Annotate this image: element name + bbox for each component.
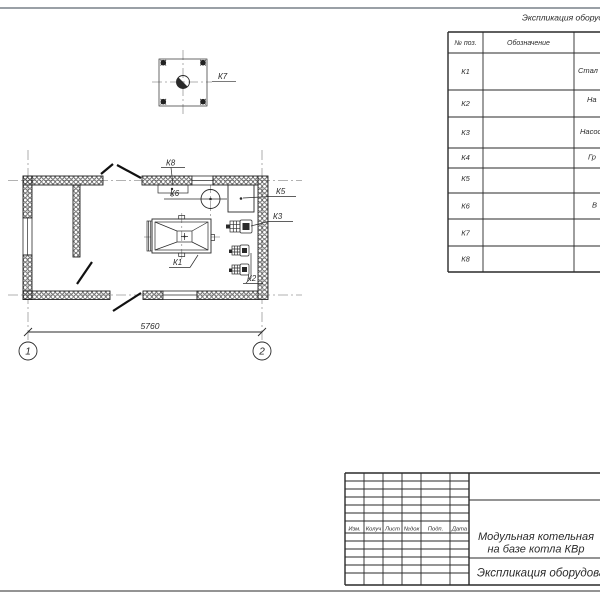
row-pos: К8	[461, 255, 470, 264]
axis-2-number: 2	[258, 347, 265, 358]
chimney-unit-k7: К7	[159, 59, 236, 106]
tb-col-ndoc: №док	[404, 527, 420, 533]
doors	[77, 164, 141, 311]
door-top-leaf-right	[117, 165, 141, 178]
row-pos: К5	[461, 174, 470, 183]
wall-top-left	[23, 176, 103, 185]
wall-top-mid	[142, 176, 192, 185]
row-name: Насос	[580, 127, 600, 136]
partition-wall	[73, 185, 80, 257]
k2-pump-2	[229, 264, 249, 275]
k3-label: К3	[273, 212, 283, 221]
k1-label: К1	[173, 258, 182, 267]
tb-col-list: Лист	[384, 527, 400, 533]
row-pos: К4	[461, 153, 470, 162]
table-row: К8	[461, 255, 470, 264]
k8-label: К8	[166, 159, 176, 168]
col-header-pos: № поз.	[454, 40, 476, 47]
title-block: Изм. Колуч Лист №док Подп. Дата Модульна…	[345, 473, 600, 585]
dimension-value: 5760	[141, 321, 160, 331]
k5-label: К5	[276, 187, 286, 196]
table-row: К7	[461, 229, 470, 238]
door-top-leaf-left	[101, 164, 113, 174]
k2-label: К2	[247, 274, 257, 283]
tb-col-kol: Колуч	[366, 527, 382, 533]
row-pos: К7	[461, 229, 470, 238]
wall-bottom-mid	[143, 291, 163, 300]
door-bottom-leaf	[113, 293, 141, 311]
dimension-5760: 5760	[24, 321, 266, 336]
walls	[23, 176, 268, 300]
k6-label: К6	[170, 189, 180, 198]
k1-front-bar	[147, 221, 152, 251]
table-row: К1 Стал	[461, 66, 598, 76]
drawing-sheet: К7 К8 К6 К5	[0, 0, 600, 600]
tb-col-data: Дата	[451, 527, 468, 533]
table-row: К2 На	[461, 95, 596, 108]
k7-chimney-half-fill	[174, 77, 188, 91]
document-name: Экспликация оборудован	[477, 568, 600, 580]
floor-plan: К7 К8 К6 К5	[8, 50, 302, 360]
row-pos: К6	[461, 202, 470, 211]
wall-left-upper	[23, 176, 32, 218]
table-row: К6 В	[461, 201, 597, 211]
wall-bottom-left	[23, 291, 110, 300]
project-title-line2: на базе котла КВр	[487, 544, 584, 556]
boiler-k1: К1	[147, 216, 215, 268]
k2-pump-1	[229, 245, 249, 256]
table-row: К3 Насос	[461, 127, 600, 137]
unit-k6: К6	[164, 189, 227, 209]
tb-col-izm: Изм.	[348, 527, 360, 533]
k1-leader	[190, 255, 198, 268]
table-row: К4 Гр	[461, 153, 596, 163]
k3-motor	[230, 221, 240, 232]
row-pos: К2	[461, 99, 470, 108]
k7-label: К7	[218, 72, 228, 81]
row-name: В	[592, 201, 597, 210]
project-title-line1: Модульная котельная	[478, 531, 594, 543]
col-header-designation: Обозначение	[507, 39, 550, 47]
equipment-table-title: Экспликация оборуд	[522, 13, 600, 23]
wall-bottom-right	[197, 291, 258, 300]
door-partition-leaf	[77, 262, 92, 284]
table-row: К5	[461, 174, 470, 183]
wall-top-right	[213, 176, 258, 185]
row-pos: К3	[461, 128, 470, 137]
equipment-table: Экспликация оборуд № поз. Обозначение К1…	[448, 13, 600, 273]
row-name: Стал	[578, 66, 599, 75]
wall-right	[258, 176, 268, 300]
row-name: Гр	[588, 153, 596, 162]
axis-bubbles: 1 2	[19, 342, 271, 360]
row-pos: К1	[461, 67, 470, 76]
tb-col-podp: Подп.	[428, 527, 443, 533]
axis-1-number: 1	[25, 347, 31, 358]
row-name: На	[587, 95, 597, 104]
